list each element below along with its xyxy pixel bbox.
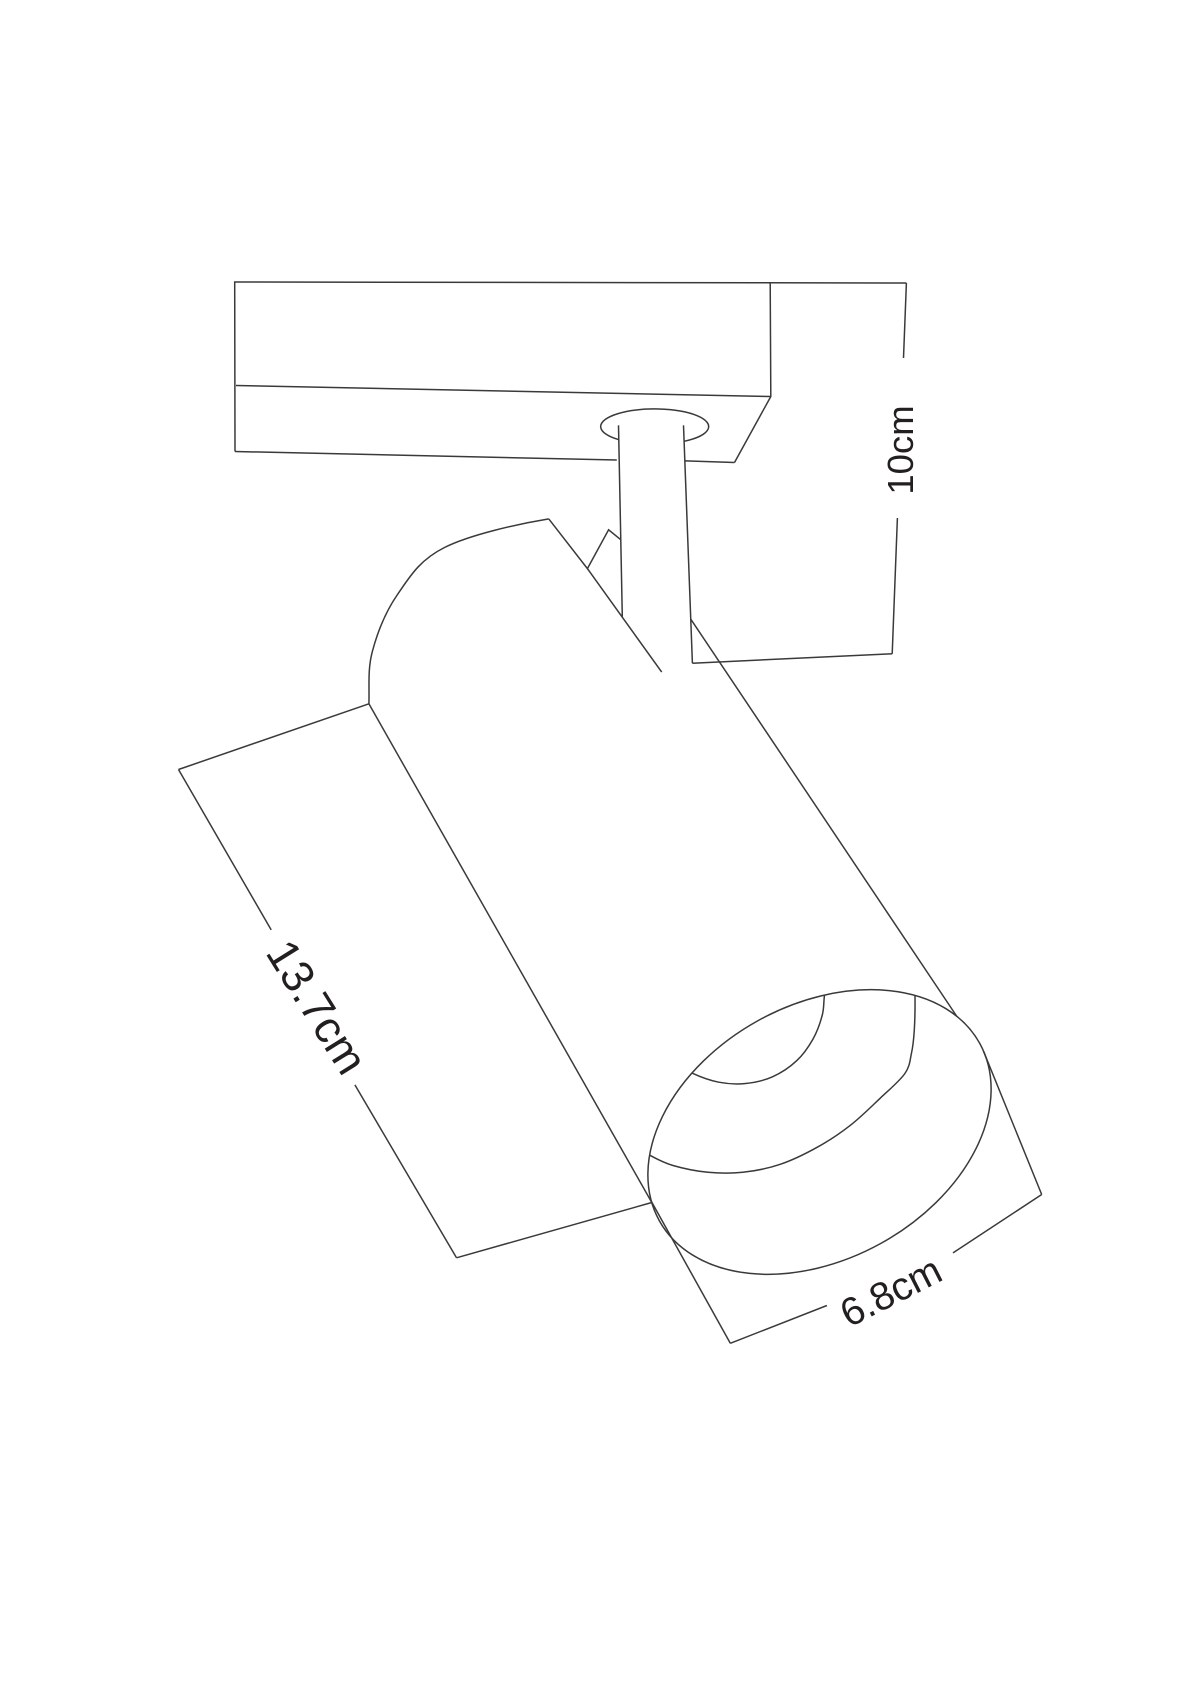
svg-text:6.8cm: 6.8cm (833, 1248, 949, 1336)
svg-text:13.7cm: 13.7cm (256, 931, 377, 1083)
svg-text:10cm: 10cm (880, 405, 921, 494)
